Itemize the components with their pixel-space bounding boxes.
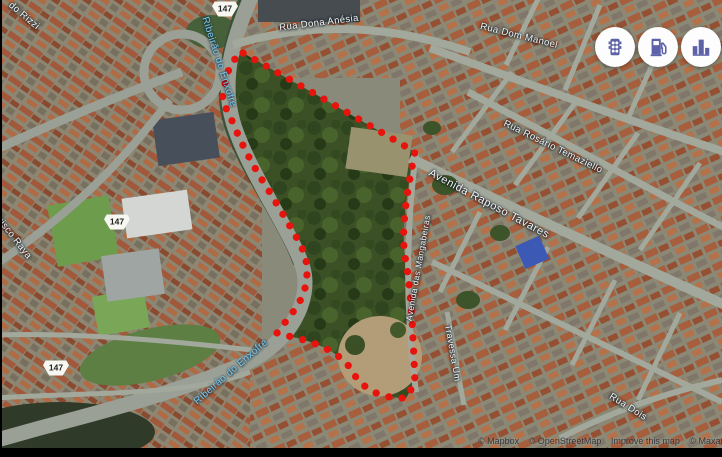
- traffic-light-button[interactable]: [595, 27, 635, 67]
- fuel-pump-icon: [647, 36, 669, 58]
- mapbox-attribution-link[interactable]: © Mapbox: [478, 436, 519, 446]
- trees: [390, 322, 406, 338]
- route-number: 147: [218, 5, 232, 14]
- letterbox-bottom: [0, 448, 722, 457]
- traffic-light-icon: [604, 36, 626, 58]
- route-number: 147: [49, 364, 63, 373]
- map-attribution: © Mapbox © OpenStreetMap Improve this ma…: [478, 436, 722, 446]
- improve-map-link[interactable]: Improve this map: [611, 436, 680, 446]
- factory-roof: [258, 0, 360, 22]
- map-canvas[interactable]: Rua Dona Anésia Rua Dom Manoel Rua Rosár…: [0, 0, 722, 457]
- letterbox-left: [0, 0, 2, 457]
- imagery-attribution: © Maxar: [689, 436, 722, 446]
- osm-attribution-link[interactable]: © OpenStreetMap: [529, 436, 602, 446]
- trees: [345, 335, 365, 355]
- warehouse-gray: [101, 248, 165, 302]
- warehouse-dark: [152, 112, 220, 166]
- buildings-icon: [690, 36, 712, 58]
- satellite-imagery: [0, 0, 722, 457]
- route-number: 147: [110, 218, 124, 227]
- buildings-button[interactable]: [681, 27, 721, 67]
- fuel-station-button[interactable]: [638, 27, 678, 67]
